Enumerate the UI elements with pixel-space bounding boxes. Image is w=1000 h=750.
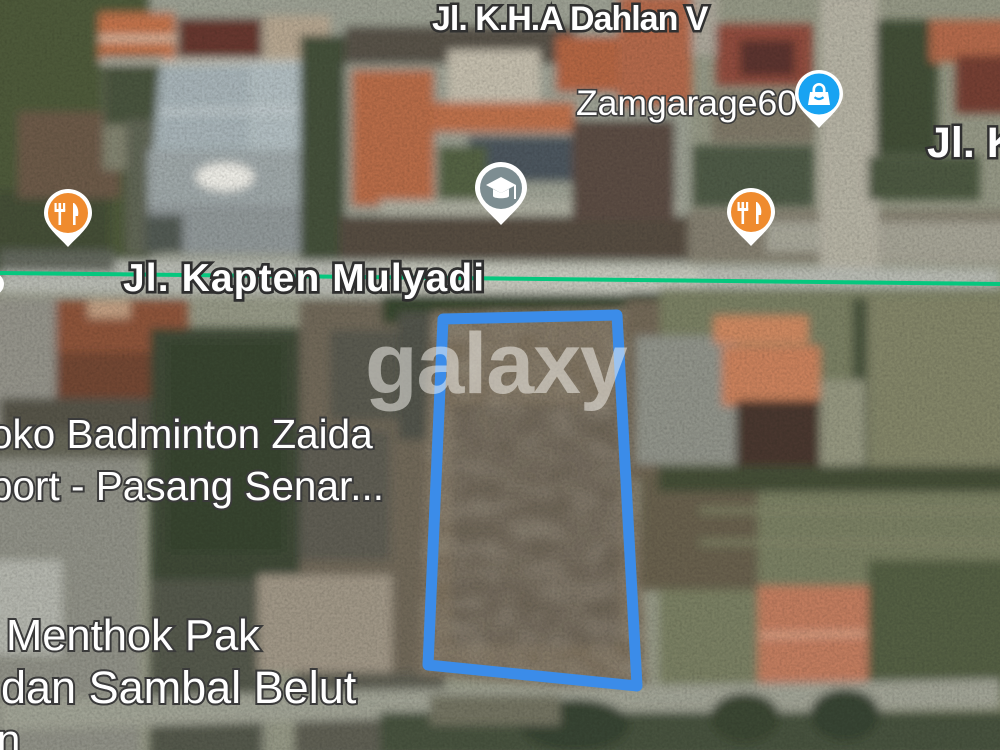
svg-text:galaxy: galaxy: [365, 316, 628, 412]
svg-text:port - Pasang Senar...: port - Pasang Senar...: [0, 463, 384, 509]
svg-text:Jl. K.H.A Dahlan V: Jl. K.H.A Dahlan V: [432, 0, 709, 38]
svg-text:dan Sambal Belut: dan Sambal Belut: [1, 662, 357, 713]
svg-text:Zamgarage60: Zamgarage60: [576, 83, 797, 123]
svg-text:Menthok Pak: Menthok Pak: [6, 612, 260, 660]
svg-text:Jl. Kapten Mulyadi: Jl. Kapten Mulyadi: [123, 257, 485, 300]
svg-text:n: n: [0, 716, 20, 750]
svg-text:Jl. K: Jl. K: [927, 119, 1000, 167]
svg-text:oko Badminton Zaida: oko Badminton Zaida: [0, 411, 373, 457]
